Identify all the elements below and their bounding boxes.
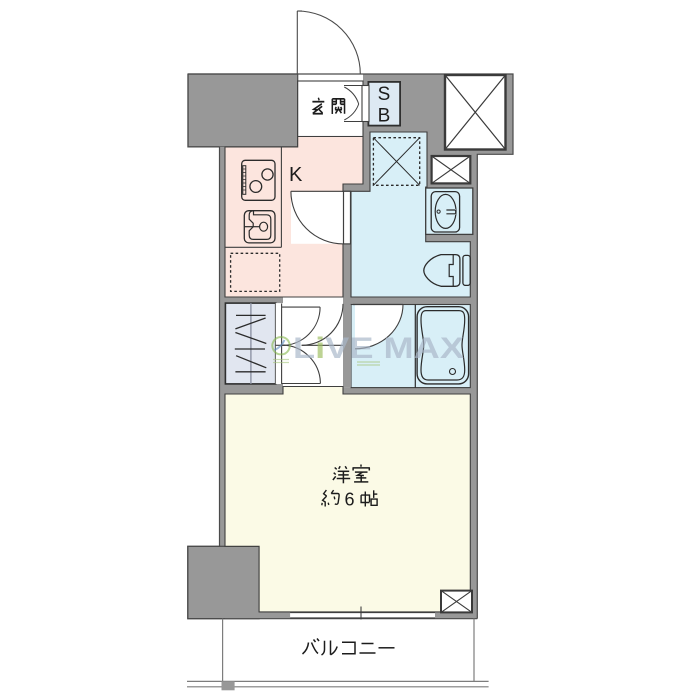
svg-text:K: K bbox=[289, 164, 303, 186]
svg-text:B: B bbox=[378, 106, 391, 127]
svg-text:LiVE MAX: LiVE MAX bbox=[293, 332, 464, 365]
svg-text:S: S bbox=[378, 84, 391, 105]
svg-text:6: 6 bbox=[345, 490, 355, 510]
